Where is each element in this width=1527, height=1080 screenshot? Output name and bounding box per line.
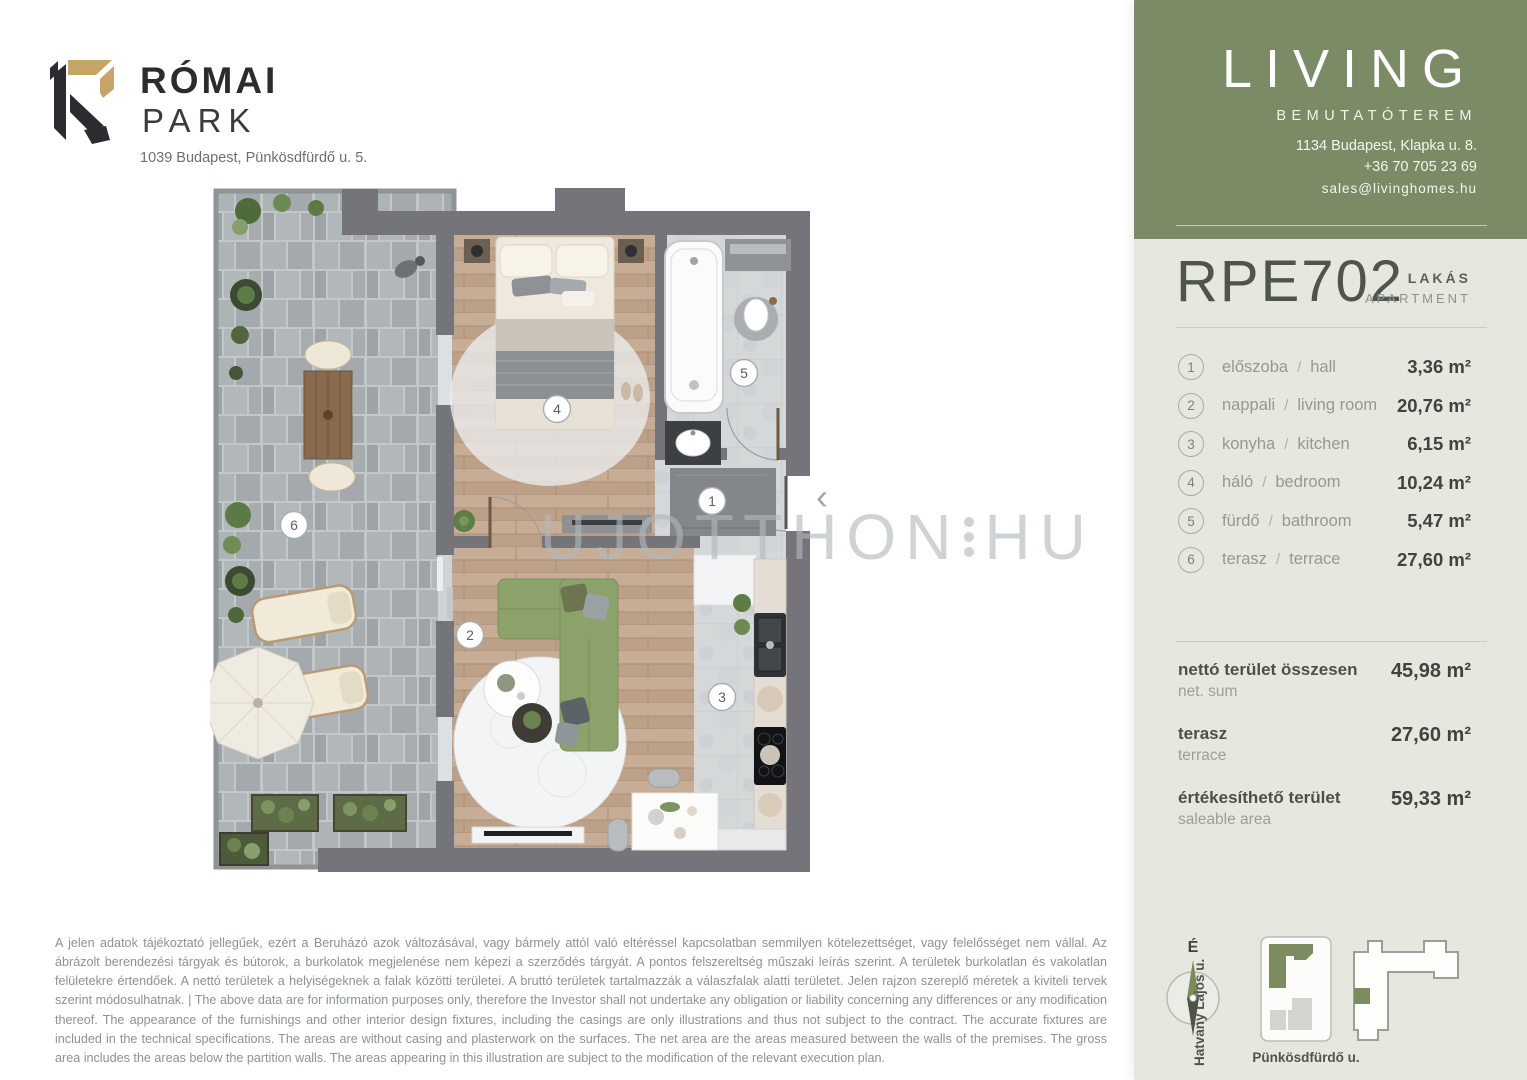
separator: /: [1262, 474, 1266, 491]
room-list: 1 előszoba / hall 3,36 m² 2 nappali / li…: [1134, 348, 1527, 579]
svg-text:3: 3: [718, 689, 726, 705]
room-name-en: bathroom: [1282, 512, 1352, 531]
toilet: [734, 297, 778, 341]
room-name-hu: előszoba: [1222, 358, 1288, 377]
separator: /: [1284, 397, 1288, 414]
separator: /: [1284, 436, 1288, 453]
kitchen-sink: [754, 613, 786, 677]
romai-park-logo-icon: [48, 56, 128, 146]
room-row-bathroom: 5 fürdő / bathroom 5,47 m²: [1134, 502, 1527, 541]
svg-text:4: 4: [553, 401, 561, 417]
room-number: 3: [1178, 431, 1204, 457]
room-name-hu: terasz: [1222, 550, 1267, 569]
showroom-address: 1134 Budapest, Klapka u. 8.: [1296, 136, 1477, 157]
brand-name-line1: RÓMAI: [140, 60, 278, 102]
total-label-en: saleable area: [1178, 811, 1341, 829]
svg-text:É: É: [1188, 937, 1199, 956]
separator: /: [1269, 513, 1273, 530]
unit-type-hu: LAKÁS: [1365, 270, 1471, 286]
disclaimer-text: A jelen adatok tájékoztató jellegűek, ez…: [55, 934, 1107, 1069]
site-plan-icon: [1260, 936, 1332, 1042]
room-area: 3,36 m²: [1407, 356, 1471, 378]
room-area: 6,15 m²: [1407, 433, 1471, 455]
room-name-hu: nappali: [1222, 396, 1275, 415]
room-area: 20,76 m²: [1397, 395, 1471, 417]
bathtub: [665, 241, 723, 413]
total-area: 45,98 m²: [1391, 660, 1471, 683]
brand-header: RÓMAI PARK 1039 Budapest, Pünkösdfürdő u…: [48, 52, 468, 172]
room-row-living: 2 nappali / living room 20,76 m²: [1134, 387, 1527, 426]
watermark-dots: [964, 517, 974, 557]
totals: nettó terület összesen net. sum 45,98 m²…: [1134, 660, 1527, 852]
room-area: 5,47 m²: [1407, 510, 1471, 532]
building-outline-icon: [1346, 936, 1466, 1048]
cooktop: [754, 727, 786, 785]
total-saleable: értékesíthető terület saleable area 59,3…: [1134, 788, 1527, 829]
room-name-en: bedroom: [1275, 473, 1340, 492]
brand-address: 1039 Budapest, Pünkösdfürdő u. 5.: [140, 150, 367, 166]
svg-text:5: 5: [740, 365, 748, 381]
showroom-panel: LIVING BEMUTATÓTEREM 1134 Budapest, Klap…: [1134, 0, 1527, 239]
parasol: [210, 647, 314, 759]
total-label-en: terrace: [1178, 747, 1227, 765]
total-label-hu: értékesíthető terület: [1178, 788, 1341, 808]
divider: [1176, 327, 1487, 328]
living-wordmark: LIVING: [1222, 38, 1477, 100]
room-name-en: hall: [1310, 358, 1336, 377]
badge-terrace: 6: [281, 512, 308, 539]
total-label-hu: terasz: [1178, 724, 1227, 744]
room-row-bedroom: 4 háló / bedroom 10,24 m²: [1134, 464, 1527, 503]
room-row-kitchen: 3 konyha / kitchen 6,15 m²: [1134, 425, 1527, 464]
separator: /: [1297, 359, 1301, 376]
divider: [1176, 641, 1487, 642]
entrance-arrow-icon: ‹: [816, 476, 828, 518]
badge-kitchen: 3: [709, 684, 736, 711]
room-name-hu: háló: [1222, 473, 1253, 492]
svg-text:6: 6: [290, 517, 298, 533]
unit-type: LAKÁS APARTMENT: [1365, 270, 1471, 306]
total-area: 59,33 m²: [1391, 788, 1471, 811]
svg-text:2: 2: [466, 627, 474, 643]
room-name-en: living room: [1297, 396, 1377, 415]
showroom-email: sales@livinghomes.hu: [1296, 178, 1477, 199]
sidebar: LIVING BEMUTATÓTEREM 1134 Budapest, Klap…: [1134, 0, 1527, 1080]
location-map: É Hatvany Lajos u. Pünkösdfürdő u.: [1134, 928, 1527, 1078]
badge-living: 2: [457, 622, 484, 649]
street-label-bottom: Pünkösdfürdő u.: [1246, 1050, 1366, 1065]
room-number: 4: [1178, 470, 1204, 496]
badge-bedroom: 4: [544, 396, 571, 423]
room-number: 6: [1178, 547, 1204, 573]
total-label-en: net. sum: [1178, 683, 1358, 701]
street-label-vertical: Hatvany Lajos u.: [1192, 956, 1207, 1066]
room-area: 27,60 m²: [1397, 549, 1471, 571]
badge-bathroom: 5: [731, 360, 758, 387]
washbasin: [665, 421, 721, 465]
planter-box: [334, 795, 406, 831]
separator: /: [1276, 551, 1280, 568]
total-terrace: terasz terrace 27,60 m²: [1134, 724, 1527, 765]
room-name-hu: fürdő: [1222, 512, 1260, 531]
datasheet-page: RÓMAI PARK 1039 Budapest, Pünkösdfürdő u…: [0, 0, 1527, 1080]
watermark-left: UJOTTHON: [540, 500, 960, 574]
room-row-terrace: 6 terasz / terrace 27,60 m²: [1134, 541, 1527, 580]
planter-box: [252, 795, 318, 831]
watermark-right: HU: [984, 500, 1094, 574]
room-name-en: terrace: [1289, 550, 1340, 569]
showroom-phone: +36 70 705 23 69: [1296, 157, 1477, 178]
total-label-hu: nettó terület összesen: [1178, 660, 1358, 680]
divider: [1176, 225, 1487, 226]
room-number: 5: [1178, 508, 1204, 534]
brand-name-line2: PARK: [142, 102, 257, 140]
showroom-contact: 1134 Budapest, Klapka u. 8. +36 70 705 2…: [1296, 136, 1477, 199]
room-number: 2: [1178, 393, 1204, 419]
total-area: 27,60 m²: [1391, 724, 1471, 747]
room-area: 10,24 m²: [1397, 472, 1471, 494]
room-number: 1: [1178, 354, 1204, 380]
room-row-hall: 1 előszoba / hall 3,36 m²: [1134, 348, 1527, 387]
planter-box: [220, 833, 268, 865]
room-name-hu: konyha: [1222, 435, 1275, 454]
room-name-en: kitchen: [1297, 435, 1349, 454]
showroom-subtitle: BEMUTATÓTEREM: [1276, 108, 1477, 124]
unit-type-en: APARTMENT: [1365, 291, 1471, 306]
total-net: nettó terület összesen net. sum 45,98 m²: [1134, 660, 1527, 701]
